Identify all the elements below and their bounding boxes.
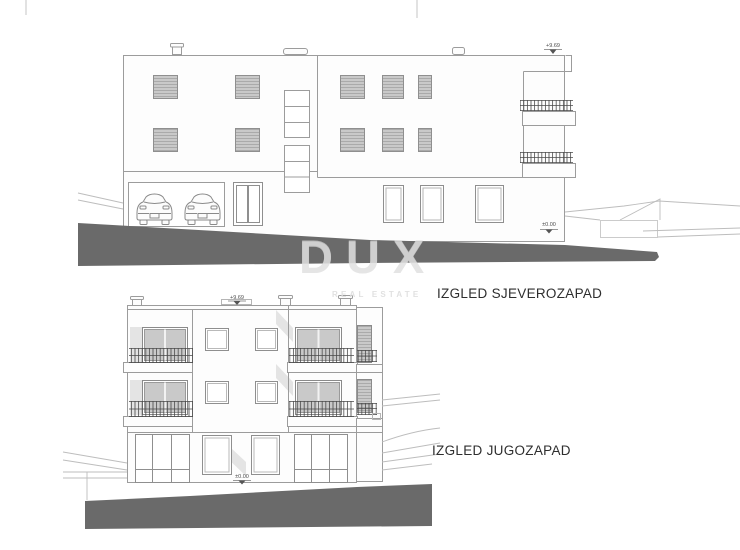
nw-level-marker-top: +9.69	[544, 43, 562, 54]
svg-text:+9.69: +9.69	[230, 295, 244, 301]
nw-elevation-label: IZGLED SJEVEROZAPAD	[437, 287, 602, 301]
page-fold-marks	[26, 0, 417, 18]
nw-lower-windows	[384, 186, 504, 223]
svg-text:+9.69: +9.69	[546, 43, 560, 49]
drawing-sheet: +9.69 ±0.00	[0, 0, 740, 550]
sw-ground-band	[85, 484, 432, 529]
svg-text:±0.00: ±0.00	[235, 474, 249, 480]
watermark-subtitle: REAL ESTATE	[332, 291, 421, 299]
sw-level-marker-top: +9.69	[228, 295, 246, 305]
sw-elevation-label: IZGLED JUGOZAPAD	[432, 444, 571, 458]
nw-chimneys	[171, 44, 465, 55]
sw-elevation-drawing: +9.69 ±0.00	[0, 290, 740, 550]
dux-watermark-text: DUX	[299, 233, 437, 280]
nw-entrance-door	[234, 183, 263, 226]
svg-text:±0.00: ±0.00	[542, 222, 556, 228]
